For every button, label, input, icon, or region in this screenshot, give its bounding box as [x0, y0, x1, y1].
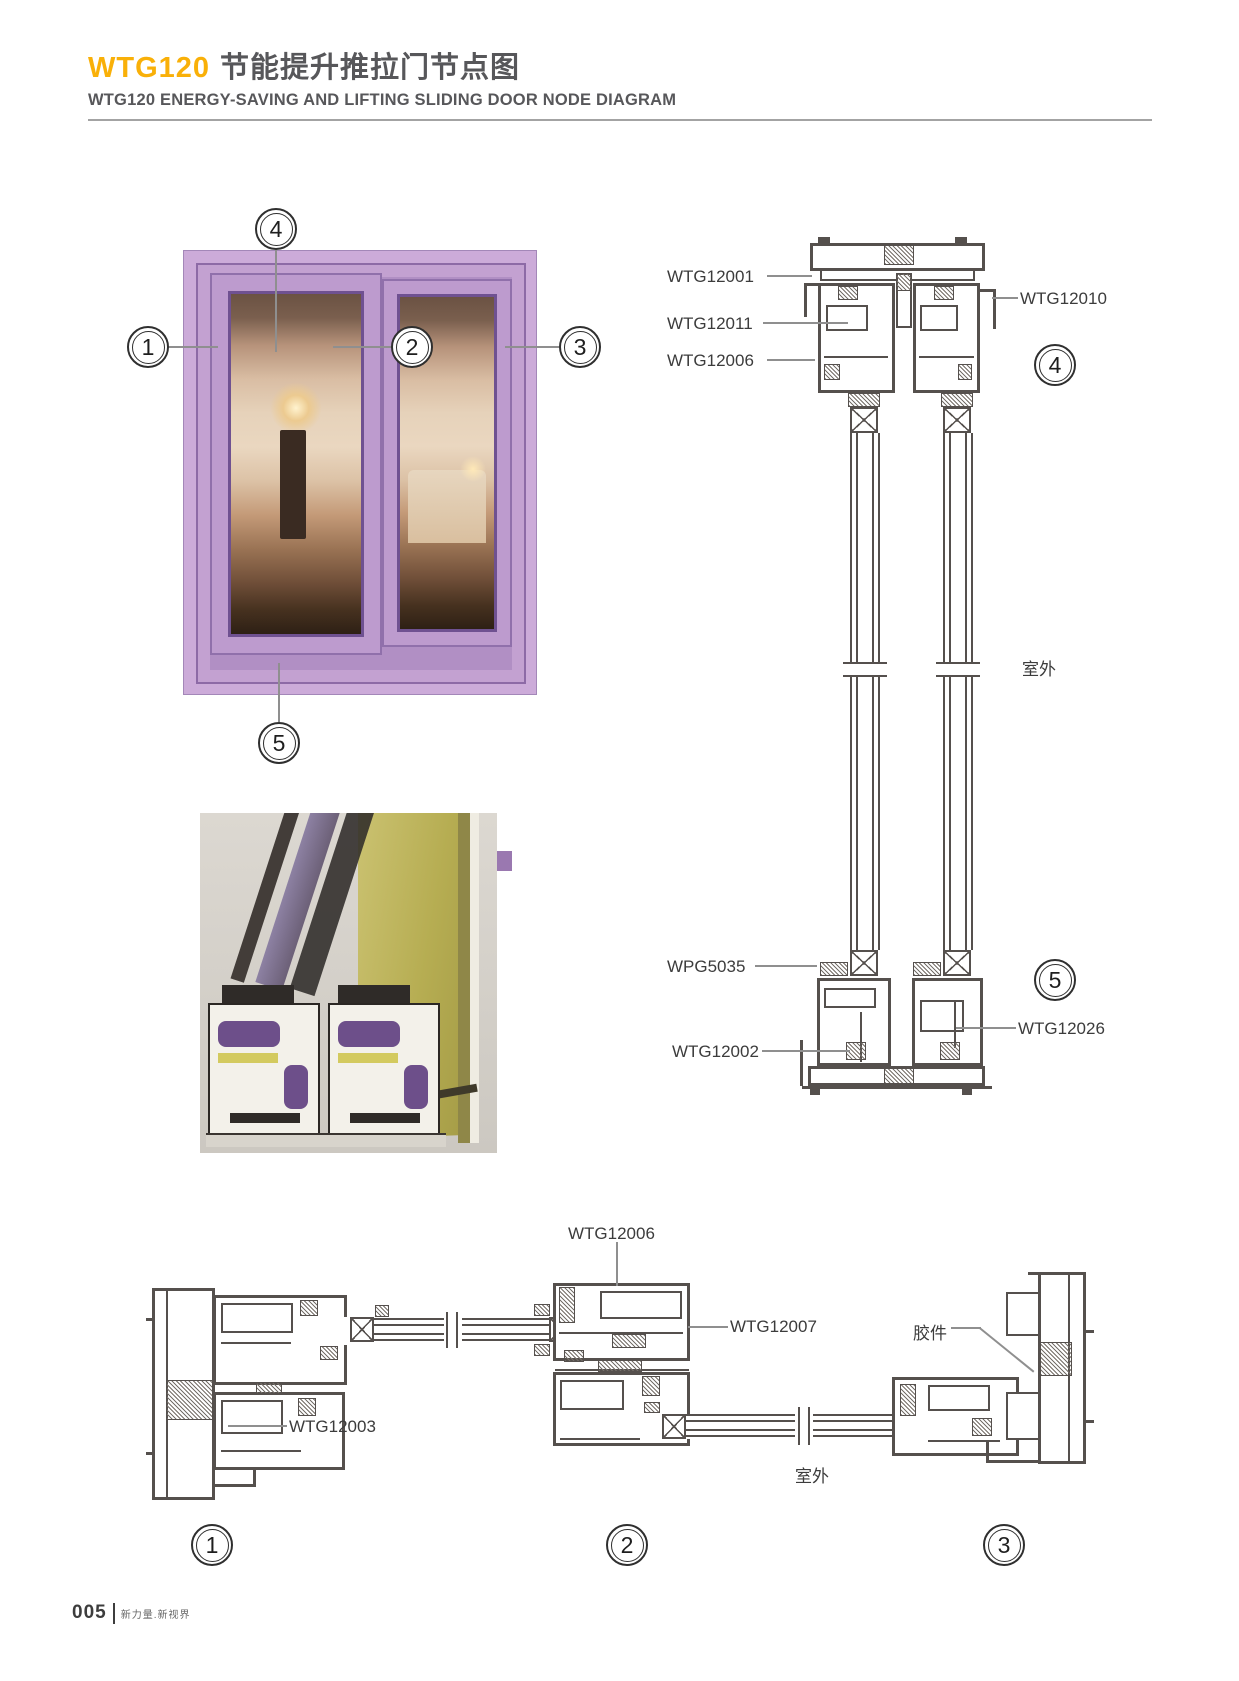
callout-node-5: 5: [258, 722, 300, 764]
profile-chamber: [920, 305, 958, 331]
glazing-seal-hatch: [848, 393, 880, 407]
profile-chamber: [826, 305, 868, 331]
glass-pane: [686, 1414, 896, 1422]
page-header: WTG120节能提升推拉门节点图 WTG120 ENERGY-SAVING AN…: [88, 44, 1152, 121]
label-wtg12006-v: WTG12006: [667, 351, 754, 371]
glazing-seal-hatch: [375, 1305, 389, 1317]
callout-number: 2: [611, 1529, 644, 1562]
profile-tab: [818, 237, 830, 243]
profile-chamber: [560, 1380, 624, 1410]
profile-foot: [253, 1468, 256, 1487]
render-gasket: [338, 1021, 400, 1047]
break-mark: [446, 1312, 448, 1348]
profile-line: [928, 1440, 1000, 1442]
callout-number: 1: [132, 331, 165, 364]
break-mark: [843, 662, 887, 664]
callout-node-2: 2: [391, 326, 433, 368]
glass-spacer-x: [850, 950, 878, 976]
profile-chamber: [1006, 1392, 1040, 1440]
profile-line: [919, 356, 974, 358]
render-base: [206, 1133, 446, 1147]
label-wtg12026: WTG12026: [1018, 1019, 1105, 1039]
callout-section-2: 2: [606, 1524, 648, 1566]
glazing-seal-hatch: [941, 393, 973, 407]
callout-number: 1: [196, 1529, 229, 1562]
break-mark: [798, 1407, 800, 1445]
glass-spacer-x: [662, 1414, 686, 1439]
break-mark: [456, 1312, 458, 1348]
glass-pane: [686, 1429, 896, 1437]
profile-tab: [955, 237, 967, 243]
page-number: 005: [72, 1602, 107, 1624]
leader-wtg12026: [956, 1027, 1016, 1029]
profile-line: [560, 1438, 640, 1440]
leader-wpg5035: [755, 965, 817, 967]
page-footer: 005 新力量.新视界: [72, 1602, 190, 1624]
gasket-hatch: [958, 364, 972, 380]
gasket-hatch: [896, 273, 912, 291]
render-accent: [338, 1053, 398, 1063]
leader-wtg12007: [688, 1326, 728, 1328]
gasket-hatch: [900, 1384, 916, 1416]
label-wtg12011: WTG12011: [667, 314, 753, 334]
render-seal: [230, 1113, 300, 1123]
glazing-seal-hatch: [644, 1402, 660, 1413]
glass-spacer-x: [350, 1317, 374, 1342]
glazing-seal-hatch: [534, 1344, 550, 1356]
leader-wtg12002: [762, 1050, 850, 1052]
render-seal: [350, 1113, 420, 1123]
render-glass-clamp: [222, 985, 294, 1003]
glass-spacer-x: [850, 407, 878, 433]
gasket-hatch: [298, 1398, 316, 1416]
glass-pane: [943, 433, 951, 662]
leader-callout-5: [278, 663, 280, 722]
callout-node-1: 1: [127, 326, 169, 368]
profile-tab: [1086, 1420, 1094, 1423]
leader-wtg12001: [767, 275, 812, 277]
render-gasket: [218, 1021, 280, 1047]
leader-wtg12003: [228, 1425, 287, 1427]
thermal-break-hatch: [166, 1380, 213, 1420]
callout-number: 3: [988, 1529, 1021, 1562]
leader-wtg12006-h: [616, 1242, 618, 1286]
label-glue-part: 胶件: [913, 1319, 947, 1344]
profile-stub: [800, 1040, 803, 1086]
profile-line: [954, 1000, 956, 1048]
product-model: WTG120: [88, 52, 210, 84]
profile-chamber: [221, 1400, 283, 1434]
render-gasket: [284, 1065, 308, 1109]
page-title: WTG120节能提升推拉门节点图: [88, 44, 1152, 86]
leader-callout-1: [168, 346, 218, 348]
gasket-hatch: [642, 1376, 660, 1396]
profile-chamber: [600, 1291, 682, 1319]
label-wtg12006-h: WTG12006: [568, 1224, 655, 1244]
glass-pane: [943, 676, 951, 950]
glass-spacer-x: [943, 407, 971, 433]
label-wtg12001: WTG12001: [667, 267, 754, 287]
render-panel-white-edge: [470, 813, 479, 1143]
callout-number: 5: [1039, 964, 1072, 997]
glazing-seal-hatch: [534, 1304, 550, 1316]
profile-foot: [810, 1089, 820, 1095]
bedroom-scene-left: [228, 291, 364, 637]
profile-chamber: [221, 1303, 293, 1333]
profile-foot: [212, 1484, 256, 1487]
callout-node-4: 4: [255, 208, 297, 250]
gasket-hatch: [300, 1300, 318, 1316]
glass-pane: [350, 1318, 574, 1326]
leader-wtg12006-v: [767, 359, 815, 361]
profile-3d-render: [200, 813, 497, 1153]
label-outdoor-right: 室外: [1022, 655, 1056, 680]
glazing-seal-hatch: [913, 962, 941, 976]
profile-chamber: [928, 1385, 990, 1411]
page-title-cn: 节能提升推拉门节点图: [220, 52, 520, 84]
glue-connector-hatch: [1040, 1342, 1072, 1376]
glass-pane: [965, 433, 973, 662]
sliding-door-photo: [183, 250, 537, 695]
glass-pane: [965, 676, 973, 950]
profile-chamber: [824, 988, 876, 1008]
glass-pane: [350, 1333, 574, 1341]
glass-spacer-x: [943, 950, 971, 976]
profile-foot: [962, 1089, 972, 1095]
leader-callout-2: [333, 346, 391, 348]
profile-tab: [1086, 1330, 1094, 1333]
profile-line: [824, 356, 888, 358]
profile-line: [221, 1450, 301, 1452]
glass-pane: [850, 676, 858, 950]
gasket-hatch: [256, 1382, 282, 1394]
leader-wtg12010: [992, 297, 1018, 299]
profile-foot: [986, 1460, 1040, 1463]
render-gasket: [404, 1065, 428, 1109]
gasket-hatch: [940, 1042, 960, 1060]
callout-section-4: 4: [1034, 344, 1076, 386]
profile-hook: [804, 283, 807, 317]
footer-slogan: 新力量.新视界: [121, 1606, 191, 1621]
header-rule: [88, 119, 1152, 121]
break-mark: [936, 662, 980, 664]
profile-tab: [146, 1452, 154, 1455]
render-glass-clamp: [338, 985, 410, 1003]
profile-line: [221, 1342, 291, 1344]
render-accent: [218, 1053, 278, 1063]
callout-node-3: 3: [559, 326, 601, 368]
break-mark: [936, 675, 980, 677]
gasket-hatch: [559, 1287, 575, 1323]
leader-wtg12011: [763, 322, 848, 324]
chandelier-glow: [270, 382, 322, 434]
gasket-hatch: [564, 1350, 584, 1362]
catalog-page: WTG120节能提升推拉门节点图 WTG120 ENERGY-SAVING AN…: [0, 0, 1239, 1681]
profile-hook: [1028, 1272, 1040, 1275]
profile-tab: [146, 1318, 154, 1321]
break-mark: [808, 1407, 810, 1445]
callout-section-1: 1: [191, 1524, 233, 1566]
callout-section-3: 3: [983, 1524, 1025, 1566]
head-thermal-break-hatch: [884, 245, 914, 265]
gasket-hatch: [972, 1418, 992, 1436]
leader-glue-part: [951, 1327, 981, 1329]
gasket-hatch: [612, 1334, 646, 1348]
label-wtg12003: WTG12003: [289, 1417, 376, 1437]
gasket-hatch: [598, 1360, 642, 1372]
label-wtg12002: WTG12002: [672, 1042, 759, 1062]
callout-number: 5: [263, 727, 296, 760]
glass-pane: [850, 433, 858, 662]
break-mark: [843, 675, 887, 677]
label-wtg12010: WTG12010: [1020, 289, 1107, 309]
glass-pane: [872, 433, 880, 662]
callout-number: 2: [396, 331, 429, 364]
label-outdoor-bottom: 室外: [795, 1462, 829, 1487]
gasket-hatch: [838, 286, 858, 300]
callout-number: 4: [260, 213, 293, 246]
leader-callout-3: [505, 346, 559, 348]
page-subtitle-en: WTG120 ENERGY-SAVING AND LIFTING SLIDING…: [88, 91, 1152, 110]
gasket-hatch: [320, 1346, 338, 1360]
profile-hook: [993, 289, 996, 329]
door-panel-left: [210, 273, 382, 655]
callout-number: 4: [1039, 349, 1072, 382]
glass-pane: [872, 676, 880, 950]
profile-chamber: [1006, 1292, 1040, 1336]
label-wtg12007: WTG12007: [730, 1317, 817, 1337]
footer-divider: [113, 1603, 115, 1624]
gasket-hatch: [934, 286, 954, 300]
gasket-hatch: [824, 364, 840, 380]
leader-callout-4: [275, 250, 277, 352]
sill-thermal-break-hatch: [884, 1068, 914, 1084]
glazing-seal-hatch: [820, 962, 848, 976]
label-wpg5035: WPG5035: [667, 957, 745, 977]
profile-foot: [986, 1442, 989, 1462]
callout-section-5: 5: [1034, 959, 1076, 1001]
room-door-shape: [280, 430, 306, 539]
callout-number: 3: [564, 331, 597, 364]
